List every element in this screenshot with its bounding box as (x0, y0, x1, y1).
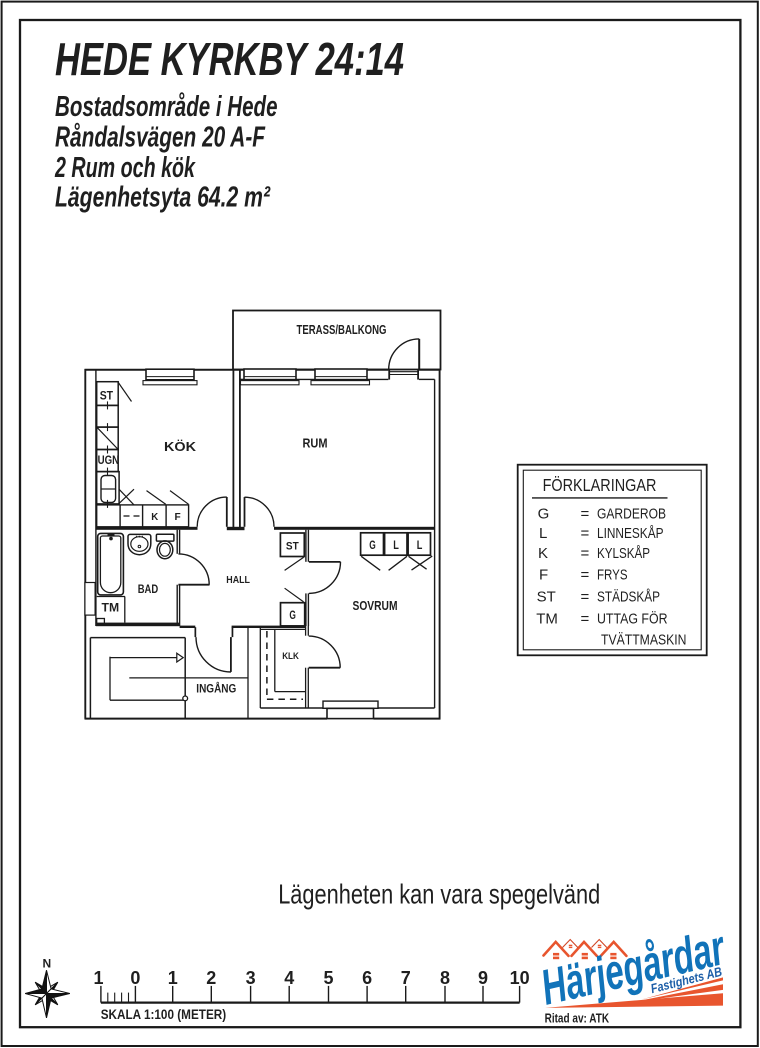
svg-text:FÖRKLARINGAR: FÖRKLARINGAR (543, 475, 657, 495)
svg-text:L: L (417, 540, 423, 552)
svg-text:2 Rum och kök: 2 Rum och kök (54, 152, 196, 184)
svg-text:ST: ST (537, 589, 556, 606)
svg-text:ST: ST (286, 541, 299, 553)
svg-text:N: N (42, 956, 51, 970)
svg-text:Råndalsvägen 20 A-F: Råndalsvägen 20 A-F (55, 122, 266, 154)
svg-text:Bostadsområde i Hede: Bostadsområde i Hede (55, 91, 278, 123)
svg-text:5: 5 (323, 968, 333, 988)
svg-text:LINNESKÅP: LINNESKÅP (597, 525, 664, 542)
svg-text:F: F (175, 511, 182, 523)
svg-text:TM: TM (536, 611, 558, 628)
svg-text:2: 2 (206, 968, 216, 988)
svg-text:HALL: HALL (226, 575, 250, 586)
svg-text:KYLSKÅP: KYLSKÅP (597, 545, 650, 562)
svg-text:SKALA 1:100 (METER): SKALA 1:100 (METER) (101, 1007, 227, 1022)
svg-text:Lägenhetsyta 64.2 m²: Lägenhetsyta 64.2 m² (55, 182, 271, 214)
svg-text:Lägenheten kan vara spegelvänd: Lägenheten kan vara spegelvänd (278, 879, 600, 910)
svg-text:UTTAG FÖR: UTTAG FÖR (597, 610, 668, 628)
svg-text:F: F (539, 566, 548, 583)
svg-text:KÖK: KÖK (164, 439, 197, 454)
svg-text:TERASS/BALKONG: TERASS/BALKONG (297, 323, 387, 337)
svg-text:BAD: BAD (138, 584, 159, 596)
svg-text:UGN: UGN (98, 453, 120, 467)
svg-text:TM: TM (102, 601, 120, 615)
svg-text:ST: ST (100, 390, 113, 402)
svg-text:FRYS: FRYS (597, 566, 628, 583)
svg-text:=: = (581, 525, 590, 542)
svg-text:6: 6 (362, 968, 372, 988)
svg-text:RUM: RUM (303, 436, 328, 451)
svg-text:1: 1 (168, 968, 178, 988)
svg-text:4: 4 (284, 968, 294, 988)
svg-text:G: G (369, 540, 376, 552)
svg-text:G: G (538, 506, 550, 523)
svg-text:HEDE KYRKBY 24:14: HEDE KYRKBY 24:14 (55, 33, 404, 85)
svg-text:G: G (289, 610, 296, 622)
svg-text:Ritad av: ATK: Ritad av: ATK (545, 1011, 610, 1025)
svg-text:=: = (581, 545, 590, 562)
svg-text:7: 7 (401, 968, 411, 988)
svg-text:10: 10 (510, 968, 530, 988)
svg-text:8: 8 (440, 968, 450, 988)
svg-text:INGÅNG: INGÅNG (196, 683, 236, 696)
svg-text:3: 3 (246, 968, 256, 988)
svg-text:9: 9 (478, 968, 488, 988)
svg-text:KLK: KLK (282, 651, 299, 661)
svg-text:L: L (539, 525, 547, 542)
svg-text:=: = (581, 611, 590, 628)
svg-text:TVÄTTMASKIN: TVÄTTMASKIN (601, 631, 687, 648)
svg-text:1: 1 (93, 968, 103, 988)
svg-text:0: 0 (130, 968, 140, 988)
svg-text:=: = (581, 506, 590, 523)
svg-text:STÄDSKÅP: STÄDSKÅP (597, 589, 660, 606)
svg-text:K: K (538, 545, 548, 562)
svg-text:=: = (581, 589, 590, 606)
svg-text:=: = (581, 566, 590, 583)
svg-text:SOVRUM: SOVRUM (353, 598, 398, 613)
svg-text:K: K (151, 511, 158, 523)
svg-text:GARDEROB: GARDEROB (597, 506, 666, 523)
svg-text:L: L (393, 540, 399, 552)
